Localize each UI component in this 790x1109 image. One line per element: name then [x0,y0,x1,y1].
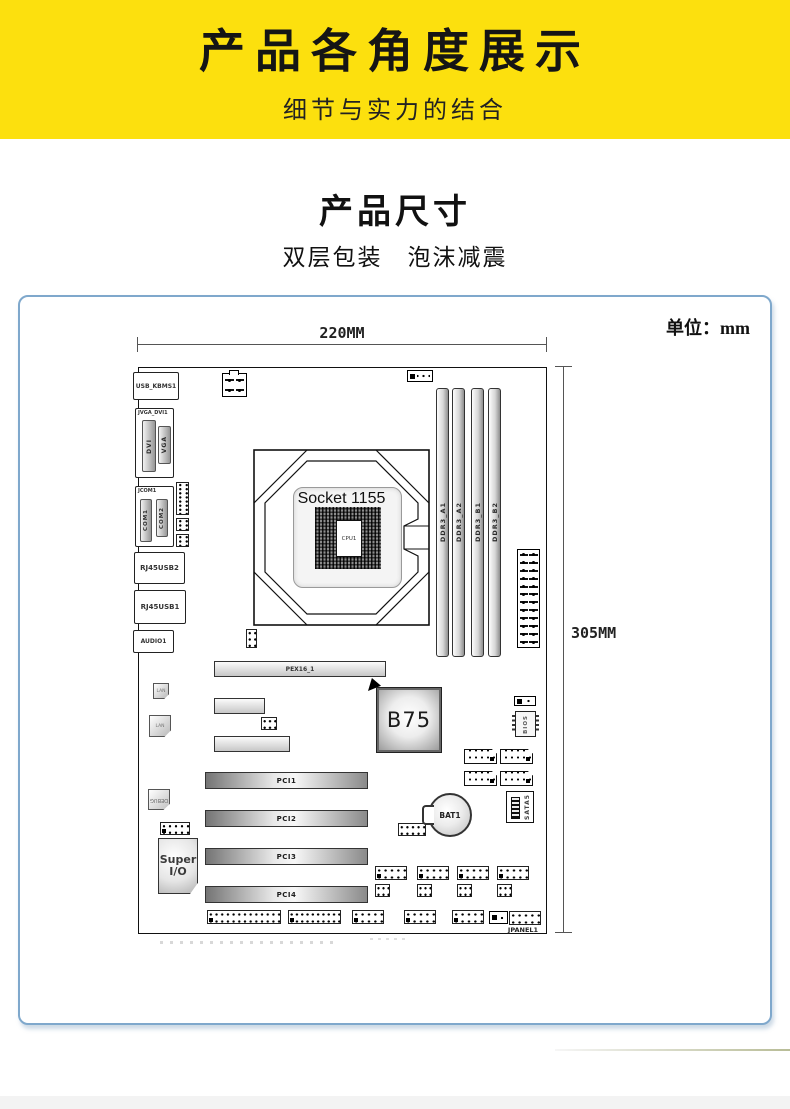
height-dimension-label: 305MM [571,624,641,642]
width-dimension-label: 220MM [272,324,412,342]
height-dim-cap-top [555,366,572,367]
bottom-band [0,1096,790,1109]
faint-dots [160,941,340,944]
banner: 产品各角度展示 细节与实力的结合 [0,0,790,139]
height-dim-cap-bottom [555,932,572,933]
banner-title: 产品各角度展示 [199,15,591,81]
cpu-socket: Socket 1155 CPU1 [253,449,430,626]
section-title: 产品尺寸 [0,184,790,233]
unit-label: 单位：mm [620,314,750,340]
height-dimension-line [563,367,564,933]
width-dimension-line [137,344,547,345]
socket-title: Socket 1155 [253,490,430,508]
banner-subtitle: 细节与实力的结合 [283,90,507,125]
section-subtitle: 双层包装 泡沫减震 [0,238,790,272]
faint-dots-2 [370,938,410,940]
width-dim-tick-left [137,337,138,352]
cpu1-label: CPU1 [336,520,362,557]
width-dim-tick-right [546,337,547,352]
faint-line [555,1049,790,1051]
